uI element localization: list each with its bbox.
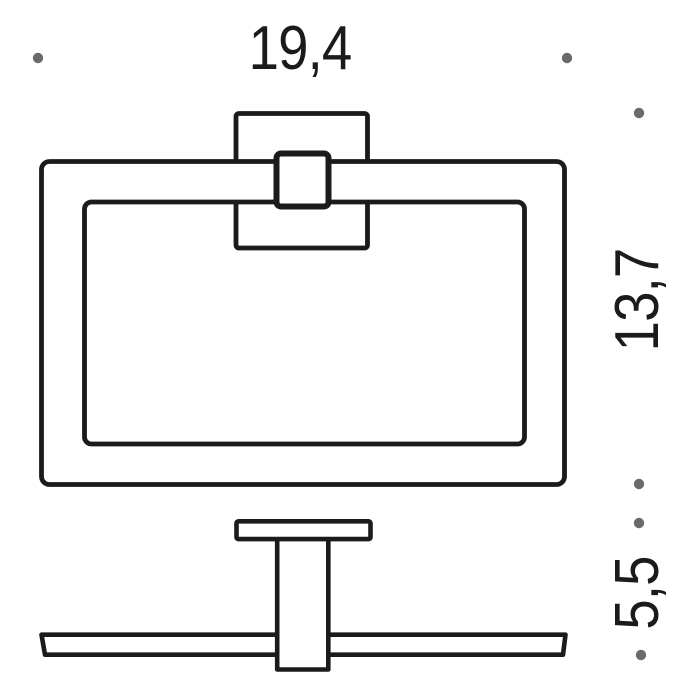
watermark-dot <box>634 479 644 489</box>
watermark-dot <box>636 650 646 660</box>
drawing-canvas: 19,4 13,7 5,5 <box>0 0 700 700</box>
watermark-dot <box>562 53 572 63</box>
dimension-depth-label: 5,5 <box>607 556 669 629</box>
dimension-height-label: 13,7 <box>607 249 669 352</box>
watermark-dot <box>634 518 644 528</box>
towel-ring-drawing <box>0 0 700 700</box>
ring-connector-square <box>277 154 329 207</box>
side-view <box>42 521 566 669</box>
dimension-width-label: 19,4 <box>249 18 352 80</box>
wall-plate-side <box>237 521 371 539</box>
watermark-dot <box>33 53 43 63</box>
front-view <box>42 114 565 485</box>
connector-stem-side <box>277 541 328 670</box>
watermark-dot <box>634 108 644 118</box>
